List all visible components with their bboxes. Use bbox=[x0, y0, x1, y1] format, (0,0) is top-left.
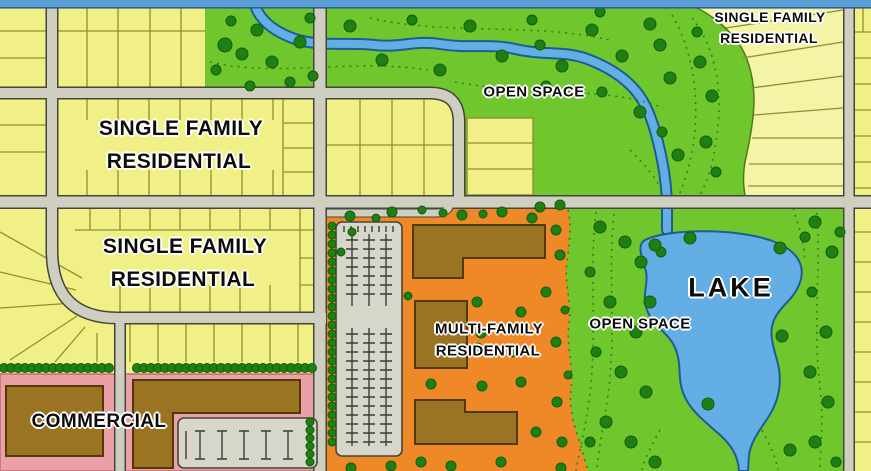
top-border bbox=[0, 0, 871, 7]
label-multi-family-2: RESIDENTIAL bbox=[436, 343, 540, 360]
label-single-family-upper-2: RESIDENTIAL bbox=[107, 150, 251, 174]
zone-single-family-block bbox=[467, 118, 533, 195]
label-multi-family-1: MULTI-FAMILY bbox=[435, 321, 543, 338]
label-single-family-upper-1: SINGLE FAMILY bbox=[99, 117, 263, 141]
label-open-space-top: OPEN SPACE bbox=[483, 84, 584, 101]
land-use-map: SINGLE FAMILY RESIDENTIAL SINGLE FAMILY … bbox=[0, 0, 871, 471]
label-open-space-right: OPEN SPACE bbox=[589, 316, 690, 333]
label-commercial: COMMERCIAL bbox=[32, 411, 167, 433]
label-single-family-tr-2: RESIDENTIAL bbox=[720, 30, 818, 46]
label-single-family-lower-1: SINGLE FAMILY bbox=[103, 235, 267, 259]
label-single-family-lower-2: RESIDENTIAL bbox=[111, 268, 255, 292]
label-lake: LAKE bbox=[688, 273, 774, 304]
commercial-parking bbox=[178, 418, 317, 468]
label-single-family-tr-1: SINGLE FAMILY bbox=[714, 9, 825, 25]
